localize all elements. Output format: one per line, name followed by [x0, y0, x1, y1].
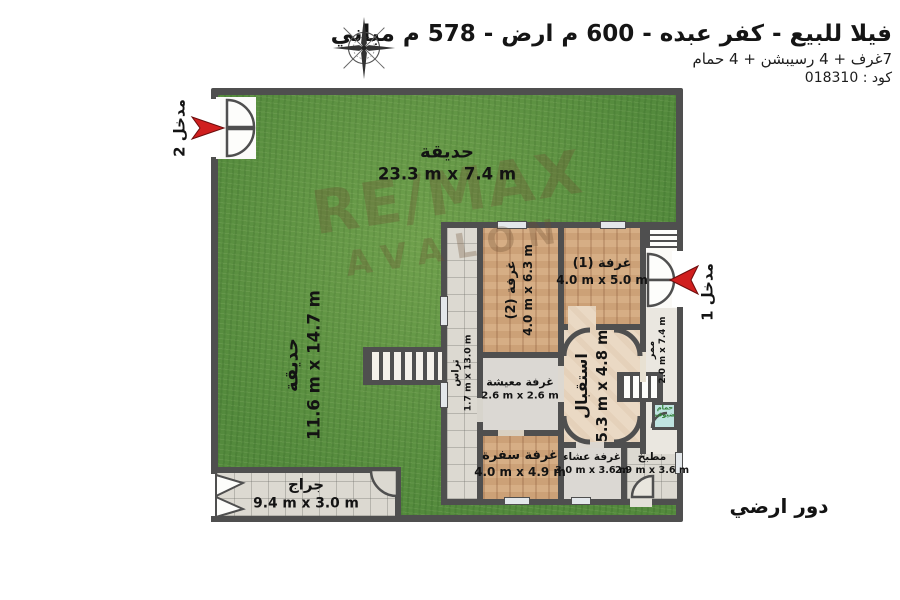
area-dims: 2.0 m x 7.4 m [659, 317, 670, 384]
area-name: جراج [253, 475, 359, 495]
area-name: غرفة معيشة [481, 375, 558, 389]
area-dims: 9.4 m x 3.0 m [253, 495, 359, 513]
area-name: استقبال [572, 330, 593, 443]
listing-code: كود : 018310 [331, 70, 892, 86]
living-label: غرفة معيشة 2.6 m x 2.6 m [481, 375, 558, 402]
listing-header: فيلا للبيع - كفر عبده - 600 م ارض - 578 … [331, 20, 892, 86]
window [440, 382, 448, 408]
area-name: غرفة سفرة [474, 448, 566, 465]
garden-top-label: حديقة 23.3 m x 7.4 m [378, 141, 516, 186]
area-dims: 5.3 m x 4.8 m [593, 330, 612, 443]
area-dims: 2.9 m x 3.6 m [615, 465, 689, 478]
garden-steps [363, 347, 447, 385]
area-name: تراس [450, 335, 463, 412]
window [497, 221, 527, 229]
entrance1-label: مدخل 1 [698, 263, 718, 321]
area-name: ممر [646, 317, 658, 384]
kitchen-label: مطبخ 2.9 m x 3.6 m [615, 451, 689, 477]
area-dims: 4.0 m x 4.9 m [474, 465, 566, 481]
garage-label: جراج 9.4 m x 3.0 m [253, 475, 359, 512]
window [600, 221, 626, 229]
window [571, 497, 591, 505]
area-name: حديقة [281, 290, 304, 440]
area-name: غرفة (2) [504, 244, 521, 336]
area-dims: 2.6 m x 2.6 m [481, 390, 558, 403]
page-title: فيلا للبيع - كفر عبده - 600 م ارض - 578 … [331, 20, 892, 49]
room1-label: غرفة (1) 4.0 m x 5.0 m [556, 256, 648, 288]
guest-bath-label: حمام ضيوف [652, 405, 678, 420]
terrace-label: تراس 1.7 m x 13.0 m [450, 335, 475, 412]
area-dims: 4.0 m x 5.0 m [556, 273, 648, 289]
garden-left-label: حديقة 11.6 m x 14.7 m [281, 290, 326, 440]
rooms-summary: 7غرف + 4 رسيبشن + 4 حمام [331, 50, 892, 68]
floorplan-page: فيلا للبيع - كفر عبده - 600 م ارض - 578 … [0, 0, 900, 600]
floor-name-label: دور ارضي [729, 493, 828, 519]
entry-vestibule [646, 248, 677, 308]
area-dims: 4.0 m x 6.3 m [521, 244, 537, 336]
area-name: مطبخ [615, 451, 689, 465]
compass-rose-icon [330, 14, 398, 82]
area-dims: 11.6 m x 14.7 m [304, 290, 326, 440]
room2-label: غرفة (2) 4.0 m x 6.3 m [504, 244, 536, 336]
vent-louver [646, 228, 677, 248]
reception-label: استقبال 5.3 m x 4.8 m [572, 330, 612, 443]
area-dims: 1.7 m x 13.0 m [463, 335, 475, 412]
dining-label: غرفة سفرة 4.0 m x 4.9 m [474, 448, 566, 480]
hall-passage [568, 306, 596, 330]
corridor-label: ممر 2.0 m x 7.4 m [646, 317, 670, 384]
entrance2-label: مدخل 2 [170, 99, 190, 157]
window [440, 296, 448, 326]
area-dims: 23.3 m x 7.4 m [378, 164, 516, 186]
area-name: حديقة [378, 141, 516, 164]
area-name: غرفة (1) [556, 256, 648, 273]
window [504, 497, 530, 505]
